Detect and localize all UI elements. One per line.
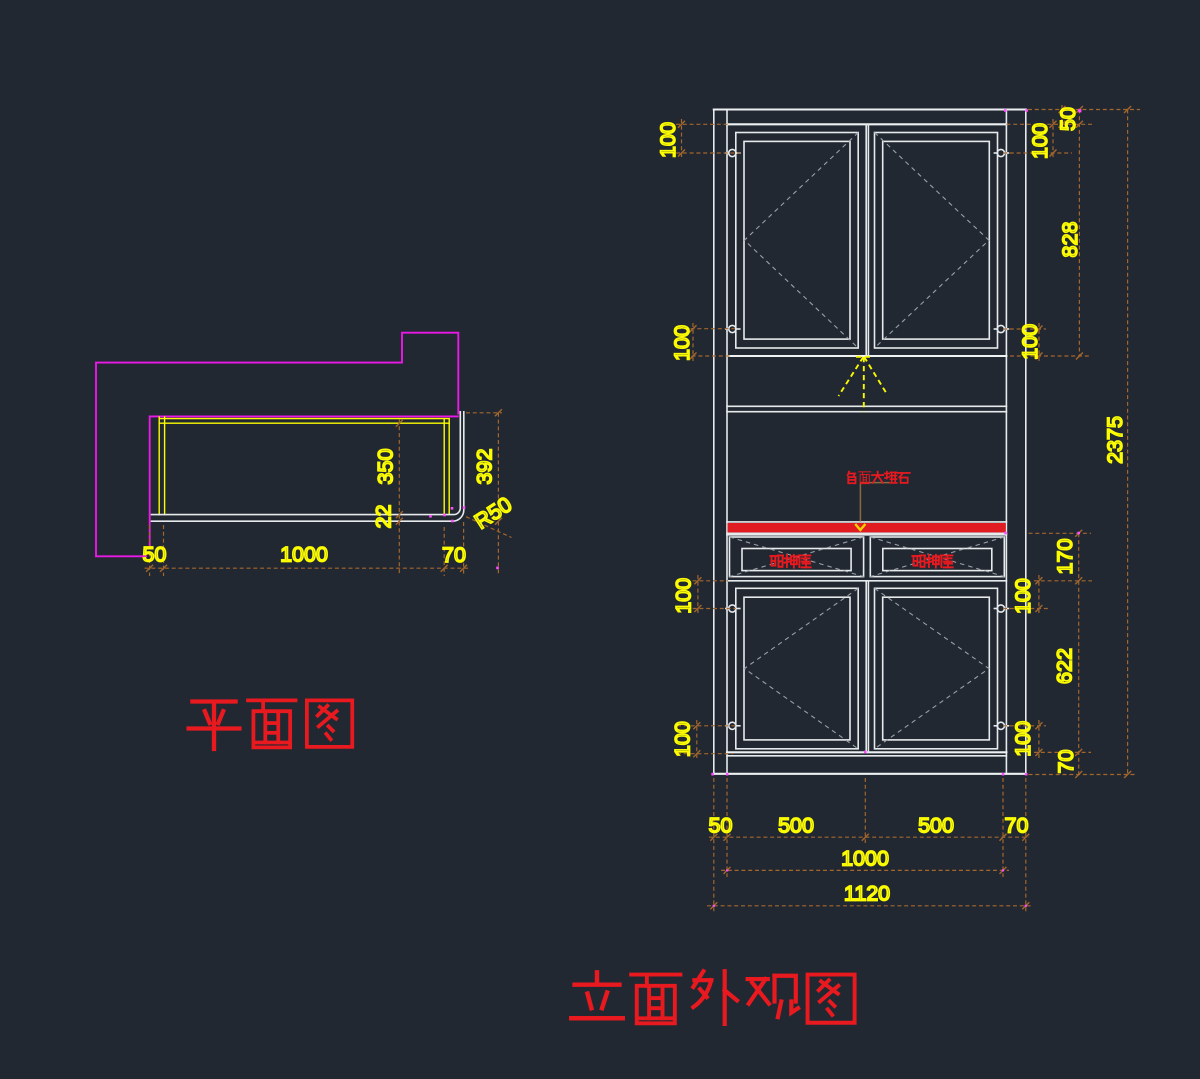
svg-text:1000: 1000 [280, 543, 328, 567]
svg-text:100: 100 [1018, 324, 1042, 360]
svg-text:100: 100 [670, 325, 694, 361]
svg-text:828: 828 [1058, 222, 1082, 258]
svg-text:50: 50 [143, 543, 167, 567]
svg-text:1120: 1120 [844, 882, 890, 906]
svg-text:500: 500 [918, 814, 954, 838]
svg-text:70: 70 [1054, 750, 1078, 774]
svg-text:22: 22 [372, 505, 396, 529]
svg-text:50: 50 [709, 814, 733, 838]
svg-text:622: 622 [1053, 648, 1077, 684]
svg-text:392: 392 [473, 449, 497, 485]
svg-text:100: 100 [1011, 721, 1035, 757]
svg-text:2375: 2375 [1103, 416, 1127, 464]
svg-text:100: 100 [656, 122, 680, 158]
svg-text:70: 70 [1005, 814, 1029, 838]
svg-text:100: 100 [671, 721, 695, 757]
svg-text:1000: 1000 [841, 847, 889, 871]
svg-text:170: 170 [1053, 539, 1077, 575]
svg-text:350: 350 [374, 449, 398, 485]
svg-text:100: 100 [1011, 578, 1035, 614]
svg-text:100: 100 [672, 578, 696, 614]
svg-text:100: 100 [1028, 123, 1052, 159]
svg-text:70: 70 [442, 543, 466, 567]
svg-text:500: 500 [778, 814, 814, 838]
